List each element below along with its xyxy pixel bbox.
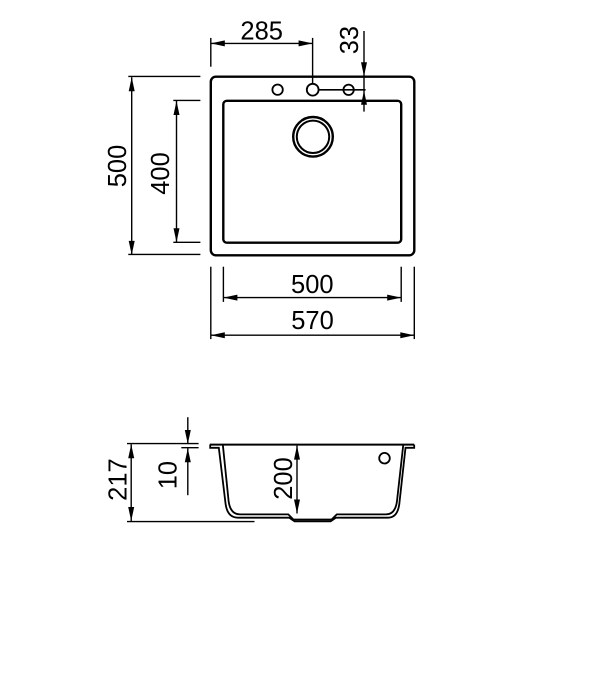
svg-text:500: 500 <box>291 271 334 299</box>
svg-text:285: 285 <box>240 18 283 46</box>
svg-text:200: 200 <box>270 457 298 500</box>
svg-text:10: 10 <box>154 461 182 489</box>
svg-text:570: 570 <box>291 307 334 335</box>
svg-text:400: 400 <box>147 152 175 195</box>
svg-text:33: 33 <box>336 26 364 54</box>
svg-text:500: 500 <box>104 145 132 188</box>
svg-text:217: 217 <box>105 458 133 501</box>
